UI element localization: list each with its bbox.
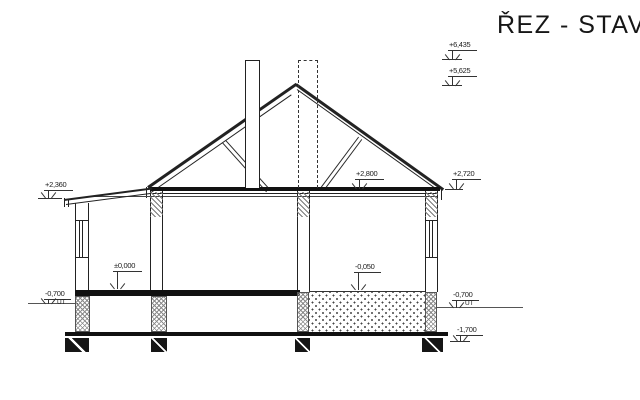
left-window-glazing-2 xyxy=(82,221,83,257)
ceiling-slab xyxy=(150,187,440,191)
level-marker-floor: ±0,000 xyxy=(113,262,142,272)
ground-line-right xyxy=(437,307,523,308)
drawing-title: ŘEZ - STAV xyxy=(497,11,640,40)
chimney xyxy=(245,60,260,188)
level-marker-foundation-bottom: -1,700 xyxy=(456,326,483,336)
porch-fascia xyxy=(64,198,65,207)
foundation-wall-middle-right xyxy=(297,292,309,332)
terrain-label: UT xyxy=(465,301,474,308)
ceiling-board-line xyxy=(152,193,437,194)
roof-left-rafter-inner-line xyxy=(151,94,292,193)
level-marker-upper-roof: +5,625 xyxy=(448,67,477,77)
wall-cut-hatch xyxy=(150,192,163,217)
level-marker-porch-eave: +2,360 xyxy=(44,181,73,191)
section-drawing-canvas: ŘEZ - STAV xyxy=(0,0,640,400)
foundation-wall-left xyxy=(75,296,90,332)
footing xyxy=(295,338,310,352)
porch-wall-outer-line xyxy=(75,203,76,292)
chimney-flue-dashed xyxy=(298,60,318,188)
subfloor-fill xyxy=(309,291,425,332)
footing xyxy=(151,338,167,352)
level-marker-right-floor: -0,050 xyxy=(354,263,381,273)
level-marker-terrain-left: -0,700 UT xyxy=(44,290,71,300)
level-marker-terrain-right: -0,700 UT xyxy=(452,291,479,301)
floor-slab xyxy=(75,290,300,296)
left-window-sill xyxy=(75,257,89,258)
foundation-wall-middle-left xyxy=(151,296,167,332)
porch-wall-inner-line xyxy=(88,203,89,292)
level-marker-ridge: +6,435 xyxy=(448,41,477,51)
footing xyxy=(65,338,89,352)
level-marker-ceiling: +2,800 xyxy=(355,170,384,180)
level-marker-eave: +2,720 xyxy=(452,170,481,180)
right-window-sill xyxy=(425,257,438,258)
right-window-glazing-2 xyxy=(432,221,433,257)
foundation-wall-right xyxy=(425,292,437,332)
foundation-slab xyxy=(65,332,448,336)
left-window-glazing-1 xyxy=(79,221,80,257)
right-eave-fascia xyxy=(441,189,442,200)
wall-cut-hatch xyxy=(297,192,310,217)
interior-ceiling-line xyxy=(89,196,437,197)
porch-fascia-inner xyxy=(68,199,69,207)
terrain-label: UT xyxy=(57,300,66,307)
wall-cut-hatch xyxy=(425,192,438,217)
right-window-glazing-1 xyxy=(429,221,430,257)
roof-left-rafter xyxy=(147,83,297,189)
ground-line-left xyxy=(28,303,78,304)
footing xyxy=(422,338,443,352)
